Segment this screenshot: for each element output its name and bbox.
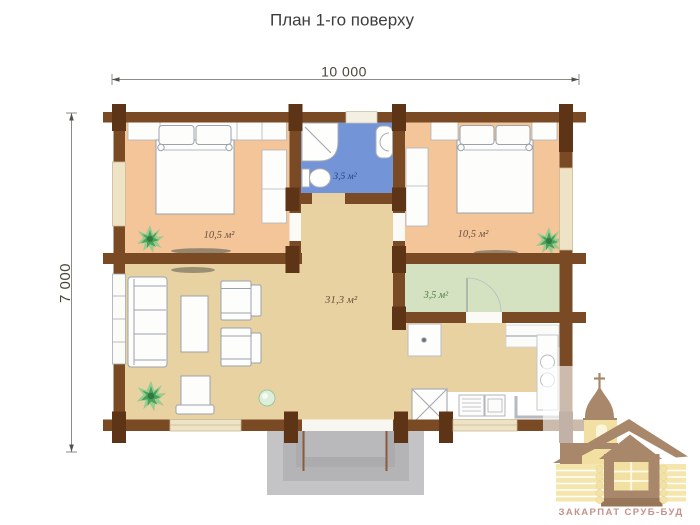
svg-text:10 000: 10 000 [321, 64, 367, 80]
svg-text:ЗАКАРПАТ СРУБ-БУД: ЗАКАРПАТ СРУБ-БУД [558, 507, 683, 518]
svg-text:7 000: 7 000 [57, 263, 74, 303]
svg-text:10,5 м²: 10,5 м² [458, 229, 490, 240]
svg-text:План 1-го поверху: План 1-го поверху [270, 11, 415, 30]
svg-text:3,5 м²: 3,5 м² [423, 290, 449, 301]
svg-text:31,3 м²: 31,3 м² [324, 294, 358, 306]
svg-text:10,5 м²: 10,5 м² [204, 230, 236, 241]
svg-text:3,5 м²: 3,5 м² [332, 172, 356, 182]
